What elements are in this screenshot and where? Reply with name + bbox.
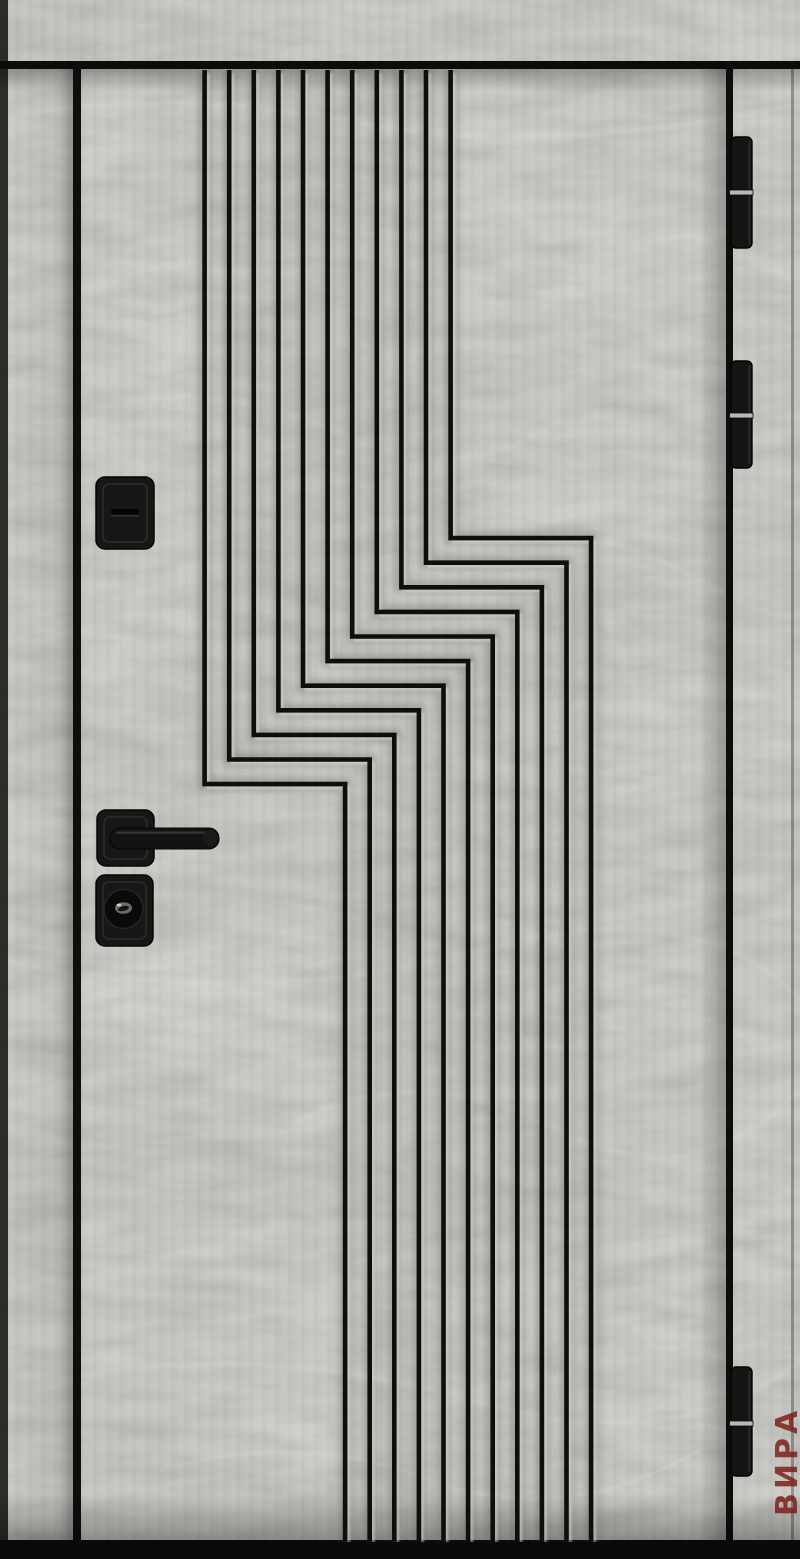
hinge-pin-band	[730, 190, 754, 195]
deadbolt-escutcheon	[96, 477, 154, 549]
hinge-pin-band	[730, 413, 754, 418]
thumbturn-slot-icon	[111, 509, 139, 515]
lever-handle	[110, 828, 219, 849]
hinge-middle	[730, 361, 754, 468]
left-jamb-shadow	[8, 61, 74, 1543]
top-frame-line	[0, 61, 800, 69]
hinge-top	[730, 137, 754, 248]
leaf-right-gap-line	[726, 61, 733, 1544]
cylinder-escutcheon	[96, 875, 153, 946]
leaf-right-gap-shadow	[698, 61, 727, 1543]
leaf-left-frame-line	[73, 61, 81, 1544]
casing-left-edge-line	[0, 0, 8, 1559]
hinge-bottom	[730, 1367, 754, 1476]
door-product-photo: ВИРА	[0, 0, 800, 1559]
hinge-pin-band	[730, 1421, 754, 1426]
door-svg: ВИРА	[0, 0, 800, 1559]
bottom-floor-strip	[0, 1540, 800, 1559]
brand-watermark: ВИРА	[770, 1407, 800, 1516]
casing-right-edge-line	[791, 62, 794, 1544]
